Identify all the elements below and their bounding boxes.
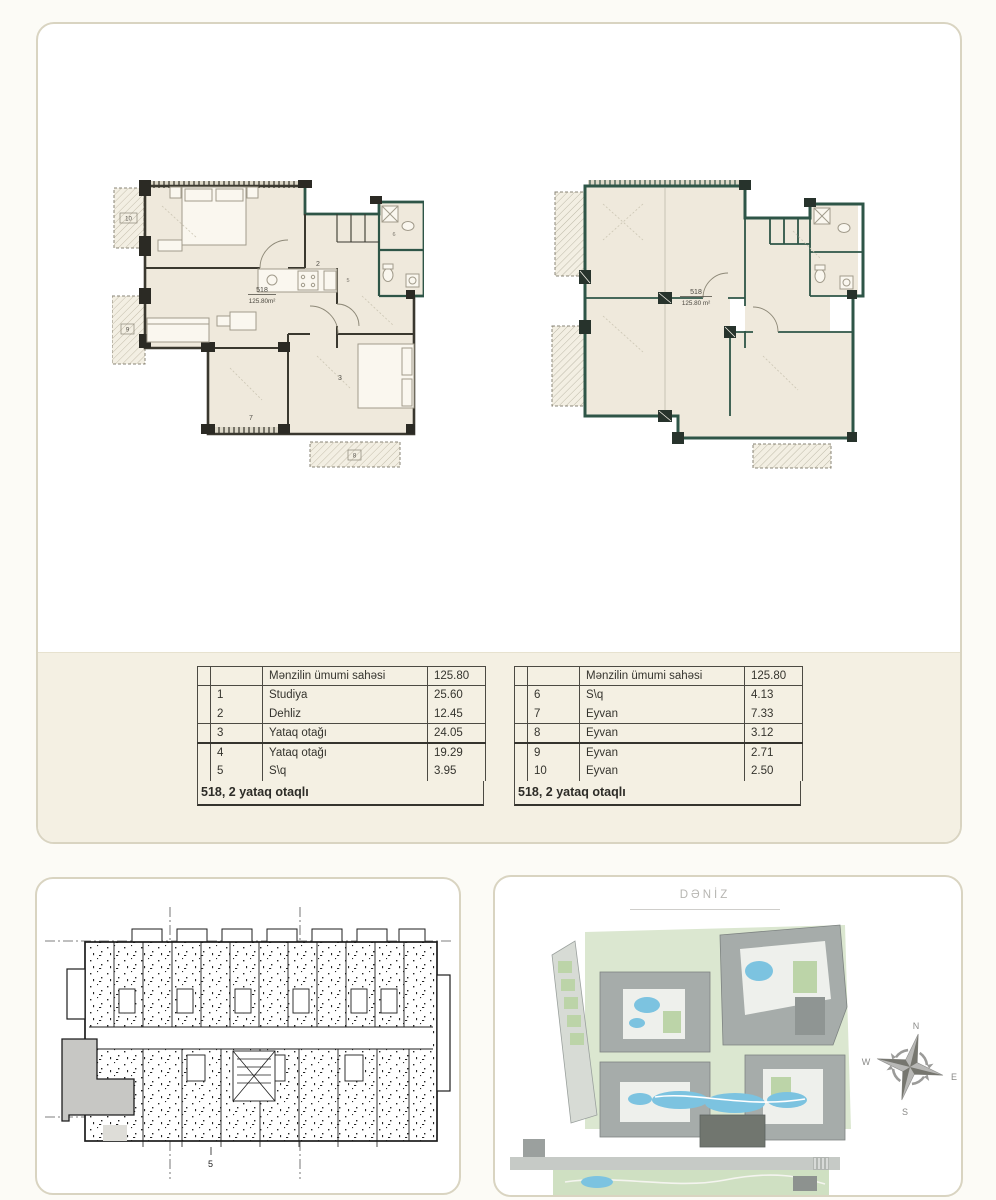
floorplan-schematic: 518 125.80 m² <box>548 176 866 472</box>
header-value: 125.80 <box>745 667 803 686</box>
compass-south-label: S <box>902 1107 908 1117</box>
room-label-5: 5 <box>346 278 349 284</box>
table-footer: 518, 2 yataq otaqlı <box>197 781 484 806</box>
balcony-label-10: 10 <box>125 217 132 223</box>
table-header-row: Mənzilin ümumi sahəsi 125.80 <box>515 667 803 686</box>
table-footer: 518, 2 yataq otaqlı <box>514 781 801 806</box>
table-row: 5 S\q 3.95 <box>198 762 486 781</box>
site-plan: N E S W <box>495 877 961 1195</box>
table-row: 8 Eyvan 3.12 <box>515 724 803 743</box>
compass-west-label: W <box>862 1057 871 1067</box>
compass-rose: N E S W <box>862 1021 957 1117</box>
floorplan-detailed: 2 3 7 5 6 10 9 8 518 125.80m² <box>112 176 424 468</box>
area-info-band: Mənzilin ümumi sahəsi 125.80 1 Studiya 2… <box>38 652 960 842</box>
table-row: 9 Eyvan 2.71 <box>515 743 803 762</box>
axis-label: 5 <box>208 1159 213 1169</box>
area-table-right-block: Mənzilin ümumi sahəsi 125.80 6 S\q 4.13 … <box>514 666 801 842</box>
compass-north-label: N <box>913 1021 920 1031</box>
room-label-6: 6 <box>392 232 395 238</box>
table-row: 6 S\q 4.13 <box>515 686 803 705</box>
table-row: 2 Dehliz 12.45 <box>198 705 486 724</box>
unit-area-label: 125.80 m² <box>682 300 710 307</box>
area-table-right: Mənzilin ümumi sahəsi 125.80 6 S\q 4.13 … <box>514 666 803 781</box>
building-floorplan-card: 5 <box>35 877 461 1195</box>
area-table-left: Mənzilin ümumi sahəsi 125.80 1 Studiya 2… <box>197 666 486 781</box>
room-label-2: 2 <box>316 261 320 268</box>
unit-area-label: 125.80m² <box>249 298 276 305</box>
unit-plan-card: 2 3 7 5 6 10 9 8 518 125.80m² <box>36 22 962 844</box>
header-label: Mənzilin ümumi sahəsi <box>263 667 428 686</box>
table-row: 3 Yataq otağı 24.05 <box>198 724 486 743</box>
table-row: 1 Studiya 25.60 <box>198 686 486 705</box>
table-header-row: Mənzilin ümumi sahəsi 125.80 <box>198 667 486 686</box>
compass-east-label: E <box>951 1072 957 1082</box>
building-floorplan: 5 <box>37 879 459 1193</box>
header-value: 125.80 <box>428 667 486 686</box>
header-label: Mənzilin ümumi sahəsi <box>580 667 745 686</box>
area-table-left-block: Mənzilin ümumi sahəsi 125.80 1 Studiya 2… <box>197 666 484 842</box>
table-row: 10 Eyvan 2.50 <box>515 762 803 781</box>
room-label-3: 3 <box>338 375 342 382</box>
unit-number-label: 518 <box>690 289 702 296</box>
site-plan-card: DƏNİZ <box>493 875 963 1197</box>
table-row: 4 Yataq otağı 19.29 <box>198 743 486 762</box>
table-row: 7 Eyvan 7.33 <box>515 705 803 724</box>
unit-number-label: 518 <box>256 287 268 294</box>
room-label-7: 7 <box>249 415 253 422</box>
